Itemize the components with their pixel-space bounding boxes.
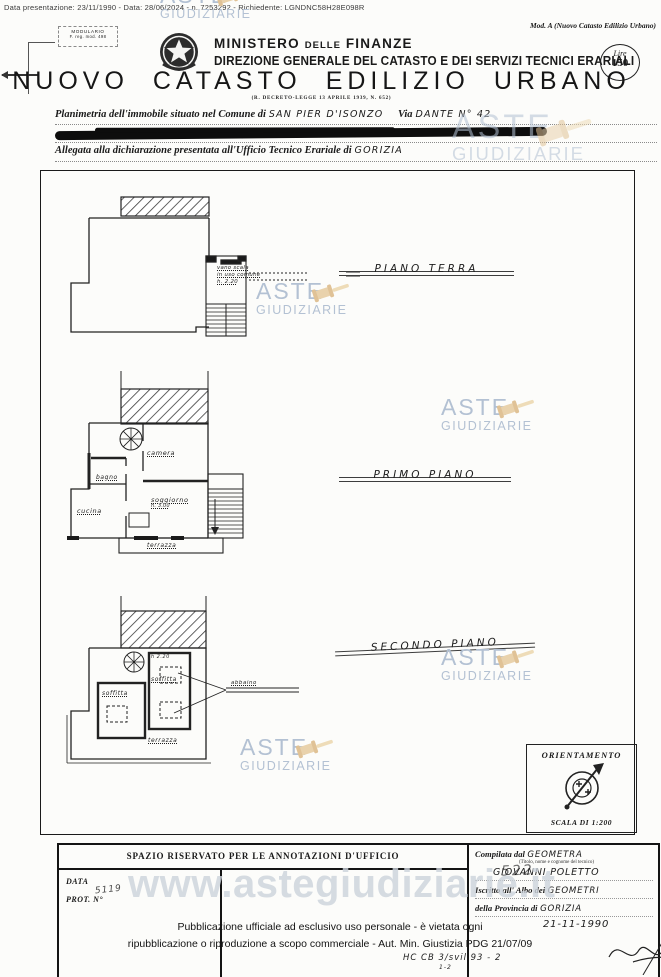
compiled-hint: (Titolo, nome e cognome del tecnico) <box>519 860 594 865</box>
drawing-frame: PIANO TERRA PRIMO PIANO SECONDO PIANO va… <box>40 170 635 835</box>
height-note: h 2.20 <box>151 655 170 660</box>
form-field-comune: Planimetria dell'immobile situato nel Co… <box>55 108 657 125</box>
province-value: GORIZIA <box>540 904 582 914</box>
redaction-bar <box>55 127 547 140</box>
room-label-cucina: cucina <box>77 507 102 515</box>
ministry-word-3: FINANZE <box>346 36 413 51</box>
ufficio-label: Allegata alla dichiarazione presentata a… <box>55 145 352 156</box>
room-label-terrazza-1: terrazza <box>147 542 176 549</box>
scale-label: SCALA DI 1:200 <box>527 818 636 827</box>
room-label-soffitta-right: soffitta <box>151 676 177 683</box>
via-value: Dante n° 42 <box>415 109 491 120</box>
legal-notice: Pubblicazione ufficiale ad esclusivo uso… <box>90 919 570 952</box>
via-label: Via <box>398 109 413 120</box>
room-label-soggiorno: soggiorno h. 3.00 <box>151 496 189 509</box>
signature <box>603 931 661 975</box>
modulario-code: F. reg. mod. 498 <box>59 34 117 39</box>
label-rule <box>339 481 511 482</box>
data-label: DATA <box>66 877 88 886</box>
form-field-ufficio: Allegata alla dichiarazione presentata a… <box>55 144 657 162</box>
ministry-title: MINISTERO DELLE FINANZE <box>214 36 413 51</box>
floor-label-primo-piano: PRIMO PIANO <box>339 469 511 487</box>
ufficio-value: Gorizia <box>355 145 403 156</box>
comune-value: San Pier d'Isonzo <box>269 109 384 120</box>
modulario-box: MODULARIO F. reg. mod. 498 <box>58 26 118 47</box>
room-label-abbaino: abbaino <box>231 680 257 686</box>
footer-header-rule <box>59 868 467 870</box>
technician-section: Compilata dal GEOMETRA (Titolo, nome e c… <box>471 845 658 977</box>
room-height-note: h. 3.00 <box>151 504 189 509</box>
dotted-rule <box>475 916 653 917</box>
legal-line-2: ripubblicazione o riproduzione a scopo c… <box>90 936 570 953</box>
comune-label: Planimetria dell'immobile situato nel Co… <box>55 109 266 120</box>
orientation-title: ORIENTAMENTO <box>527 750 636 760</box>
footer-annotations-box: SPAZIO RISERVATO PER LE ANNOTAZIONI D'UF… <box>57 843 660 977</box>
room-label-bagno: bagno <box>96 474 118 481</box>
law-reference: (R. DECRETO-LEGGE 13 APRILE 1939, N. 652… <box>0 96 643 101</box>
room-label-camera: camera <box>147 449 175 457</box>
dotted-rule <box>475 898 653 899</box>
orientation-box: ORIENTAMENTO SCALA DI 1:200 <box>526 744 637 833</box>
form-field-redacted <box>55 126 657 143</box>
ground-floor-plan <box>71 197 360 336</box>
prot-value: 5119 <box>95 884 123 897</box>
compiled-value: GEOMETRA <box>527 850 582 860</box>
prot-label: PROT. N° <box>66 895 103 904</box>
dotted-rule <box>475 880 653 881</box>
scanned-cadastral-document: Data presentazione: 23/11/1990 - Data: 2… <box>0 0 661 977</box>
annotations-header: SPAZIO RISERVATO PER LE ANNOTAZIONI D'UF… <box>59 851 467 861</box>
province-row: della Provincia di GORIZIA <box>475 903 582 914</box>
compiled-row: Compilata dal GEOMETRA <box>475 849 583 860</box>
mod-reference: Mod. A (Nuovo Catasto Edilizio Urbano) <box>530 21 656 30</box>
footer-divider <box>467 845 469 977</box>
first-floor-plan <box>67 371 243 553</box>
ministry-word-2: DELLE <box>305 40 341 51</box>
stairwell-note: vano scala in uso comune h. 2.20 <box>217 265 307 286</box>
document-title: NUOVO CATASTO EDILIZIO URBANO <box>0 67 643 96</box>
technician-name-row: GIOVANNI POLETTO <box>493 867 599 878</box>
room-label-soffitta-left: soffitta <box>102 690 128 697</box>
label-rule <box>339 275 514 276</box>
crop-mark-horizontal <box>28 42 55 43</box>
floor-label-piano-terra: PIANO TERRA <box>339 263 514 281</box>
scan-meta-line: Data presentazione: 23/11/1990 - Data: 2… <box>4 3 365 12</box>
compass-icon <box>554 762 610 814</box>
ministry-word-1: MINISTERO <box>214 36 300 51</box>
directorate-title: DIREZIONE GENERALE DEL CATASTO E DEI SER… <box>214 54 634 68</box>
floor-plans-linework <box>41 171 634 834</box>
albo-row: Iscritto all' Albo dei GEOMETRI <box>475 885 599 896</box>
second-floor-plan <box>67 596 299 763</box>
technician-name: GIOVANNI POLETTO <box>493 867 599 878</box>
room-label-terrazza-2: terrazza <box>148 737 177 744</box>
albo-value: GEOMETRI <box>548 886 600 896</box>
legal-line-1: Pubblicazione ufficiale ad esclusivo uso… <box>90 919 570 936</box>
